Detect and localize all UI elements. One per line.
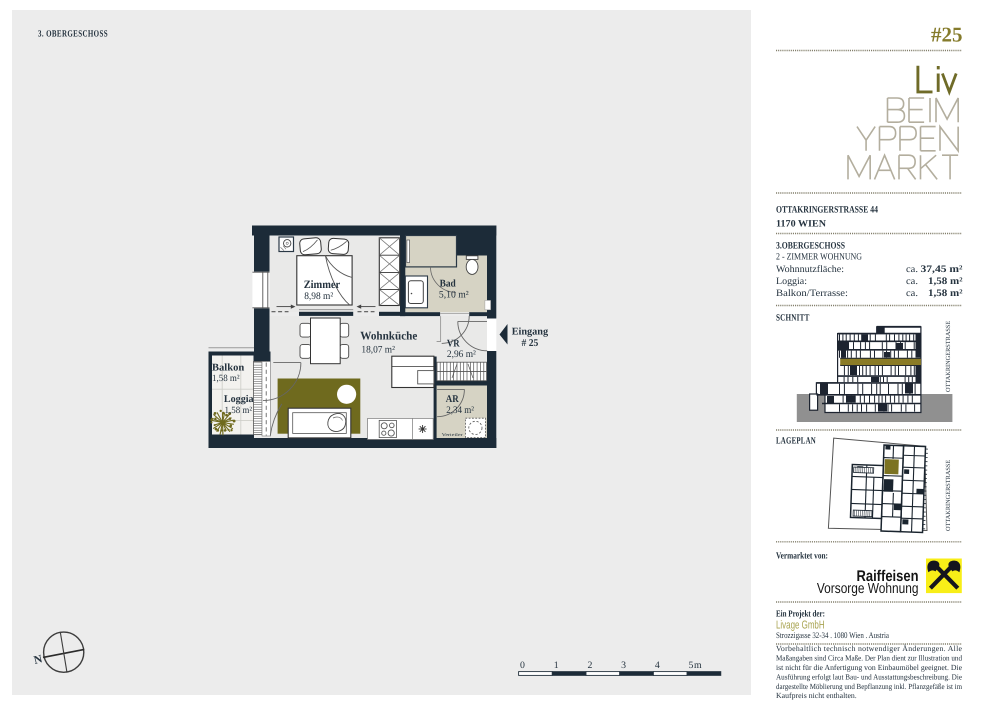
svg-text:Balkon/Terrasse:: Balkon/Terrasse: [776, 288, 848, 299]
svg-text:0: 0 [520, 660, 525, 671]
svg-text:3. OBERGESCHOSS: 3. OBERGESCHOSS [38, 30, 108, 40]
svg-text:SCHNITT: SCHNITT [776, 313, 810, 324]
svg-text:VR: VR [447, 338, 460, 349]
svg-text:Ein Projekt der:: Ein Projekt der: [776, 609, 825, 619]
svg-text:OTTAKRINGERSTRASSE 44: OTTAKRINGERSTRASSE 44 [776, 205, 878, 216]
svg-text:Ausführung erfolgt laut Bau- u: Ausführung erfolgt laut Bau- und Ausstat… [776, 672, 962, 681]
svg-text:1,58 m²: 1,58 m² [928, 288, 963, 299]
svg-text:2,34 m²: 2,34 m² [446, 405, 474, 416]
svg-text:Bad: Bad [440, 279, 456, 290]
svg-text:Vermarktet von:: Vermarktet von: [776, 552, 828, 562]
svg-text:18,07 m²: 18,07 m² [361, 344, 395, 355]
svg-text:Wohnnutzfläche:: Wohnnutzfläche: [776, 264, 844, 275]
svg-text:Zimmer: Zimmer [304, 279, 341, 291]
svg-text:Maßangaben sind Circa Maße. De: Maßangaben sind Circa Maße. Der Plan die… [776, 654, 962, 663]
svg-text:1,58 m²: 1,58 m² [212, 374, 240, 384]
svg-text:m: m [694, 660, 702, 671]
svg-text:Vorbehaltlich technisch notwen: Vorbehaltlich technisch notwendiger Ände… [776, 644, 963, 653]
svg-text:2: 2 [587, 660, 592, 671]
svg-text:4: 4 [655, 660, 660, 671]
svg-text:5,10 m²: 5,10 m² [439, 289, 469, 300]
svg-text:ca.: ca. [906, 276, 918, 287]
svg-text:Strozzigasse 32-34 . 1080 Wien: Strozzigasse 32-34 . 1080 Wien . Austria [776, 630, 889, 640]
svg-text:Kaufpreis nicht enthalten.: Kaufpreis nicht enthalten. [776, 691, 857, 700]
svg-text:#25: #25 [931, 23, 963, 47]
svg-text:2,96 m²: 2,96 m² [447, 349, 476, 360]
svg-text:1,58 m²: 1,58 m² [225, 406, 253, 416]
svg-text:Wohnküche: Wohnküche [360, 329, 417, 343]
svg-text:Balkon: Balkon [212, 363, 244, 374]
svg-text:ca.: ca. [906, 288, 918, 299]
svg-text:LAGEPLAN: LAGEPLAN [776, 436, 816, 447]
svg-text:2 - ZIMMER WOHNUNG: 2 - ZIMMER WOHNUNG [776, 251, 862, 262]
svg-text:OTTAKRINGERSTRASSE: OTTAKRINGERSTRASSE [945, 460, 952, 531]
svg-text:OTTAKRINGERSTRASSE: OTTAKRINGERSTRASSE [945, 321, 952, 392]
svg-text:AR: AR [446, 394, 459, 405]
svg-text:1,58 m²: 1,58 m² [928, 276, 963, 287]
svg-text:3: 3 [621, 660, 626, 671]
svg-text:ist nicht für die Anfertigung: ist nicht für die Anfertigung von Einbau… [776, 663, 963, 672]
svg-text:5: 5 [689, 660, 694, 671]
svg-text:Loggia: Loggia [224, 394, 254, 405]
svg-text:dargestellte Möblierung und Be: dargestellte Möblierung und Bepflanzung … [776, 682, 962, 691]
svg-text:Loggia:: Loggia: [776, 276, 807, 287]
svg-text:37,45 m²: 37,45 m² [921, 264, 963, 275]
svg-text:1: 1 [554, 660, 559, 671]
svg-text:1170 WIEN: 1170 WIEN [776, 219, 826, 230]
svg-text:Verteiler: Verteiler [442, 432, 464, 437]
svg-text:8,98 m²: 8,98 m² [304, 291, 333, 302]
svg-text:3.OBERGESCHOSS: 3.OBERGESCHOSS [776, 241, 845, 252]
svg-text:Vorsorge Wohnung: Vorsorge Wohnung [817, 581, 919, 597]
svg-text:ca.: ca. [906, 264, 918, 275]
svg-text:# 25: # 25 [522, 338, 539, 349]
svg-text:Eingang: Eingang [512, 326, 549, 337]
